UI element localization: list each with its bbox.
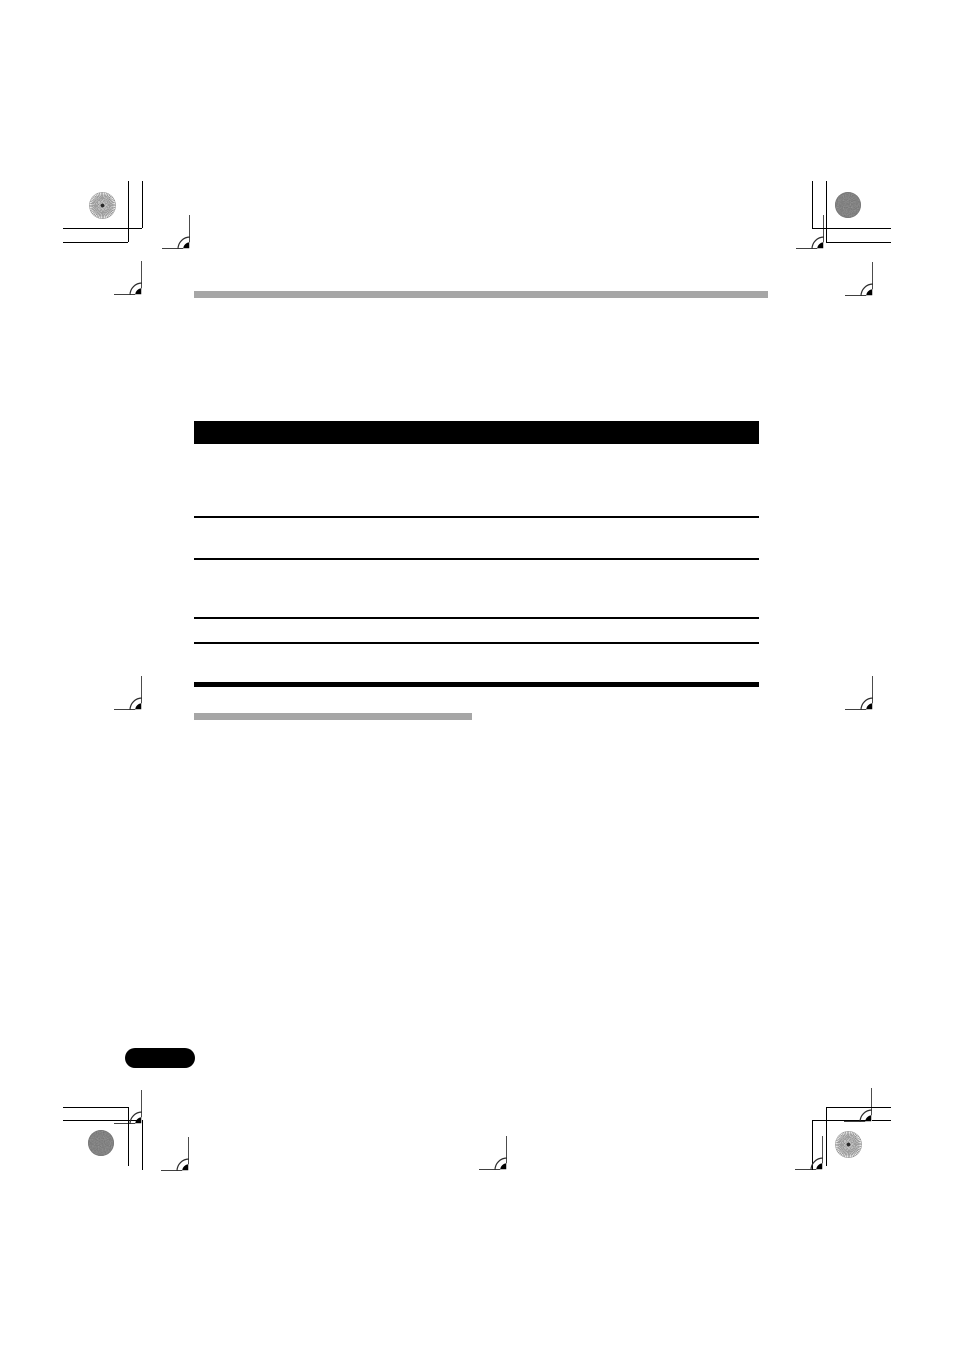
heading-rule: [194, 291, 768, 298]
registration-mark-icon: [813, 224, 873, 296]
table-header-bar: [194, 421, 759, 444]
registration-mark-icon: [82, 223, 142, 295]
table-row-rule: [194, 558, 759, 560]
subheading-rule: [194, 713, 472, 720]
registration-mark-icon: [763, 1098, 823, 1170]
granite-calibration-icon: [87, 1129, 115, 1157]
registration-mark-icon: [82, 638, 142, 710]
pinwheel-calibration-icon: [89, 192, 116, 219]
pinwheel-calibration-icon: [835, 1131, 862, 1158]
granite-calibration-icon: [834, 191, 862, 219]
registration-mark-icon: [813, 638, 873, 710]
table-row-rule: [194, 617, 759, 619]
registration-mark-icon: [447, 1098, 507, 1170]
table-row-rule: [194, 516, 759, 518]
table-bottom-rule: [194, 682, 759, 687]
registration-mark-icon: [129, 1099, 189, 1171]
document-page: [0, 0, 954, 1350]
table-row-rule: [194, 642, 759, 644]
